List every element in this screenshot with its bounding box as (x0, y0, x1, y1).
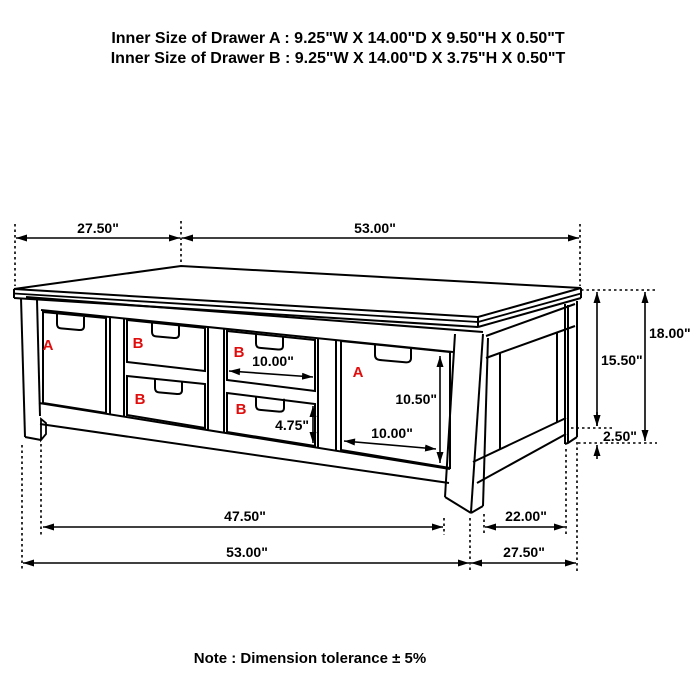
side-bottom-rail-bottom (477, 434, 566, 483)
label-drawer-a-left: A (43, 337, 54, 354)
tabletop-top-face (14, 266, 581, 317)
left-post-inner-edge (37, 300, 40, 416)
label-front-inner: 47.50" (224, 508, 266, 524)
left-post-outer-edge (21, 298, 25, 437)
label-drawer-b-right-top: B (234, 344, 245, 361)
dimension-diagram: Inner Size of Drawer A : 9.25"W X 14.00"… (0, 0, 700, 700)
label-drawer-b-mid-top: B (133, 335, 144, 352)
label-body-height: 15.50" (601, 352, 643, 368)
drawer-a-left (43, 312, 106, 413)
furniture-line-drawing: 27.50" 53.00" 18.00" 15.50" 2.50" 10.00"… (0, 0, 700, 700)
front-right-foot-front-bottom (445, 497, 471, 513)
label-side-inner: 22.00" (505, 508, 547, 524)
front-right-foot-side-bottom (471, 506, 483, 513)
dimension-labels: 27.50" 53.00" 18.00" 15.50" 2.50" 10.00"… (77, 220, 691, 560)
side-bottom-rail-top (473, 418, 566, 462)
dim-line-drawer-b-width (229, 371, 313, 377)
label-drawer-a-front: A (353, 364, 364, 381)
label-drawer-a-height: 10.50" (395, 391, 437, 407)
front-right-leg-back-edge (483, 338, 488, 506)
front-right-leg-corner-edge (471, 334, 483, 512)
label-drawer-b-width: 10.00" (252, 353, 294, 369)
label-drawer-b-mid-bottom: B (135, 391, 146, 408)
left-foot-bottom (25, 437, 41, 440)
label-side-overall: 27.50" (503, 544, 545, 560)
left-foot-side-face (41, 419, 46, 440)
tolerance-note: Note : Dimension tolerance ± 5% (0, 650, 620, 667)
label-leg-clearance: 2.50" (603, 428, 637, 444)
cabinet-side-panel (473, 304, 575, 483)
label-front-overall: 53.00" (226, 544, 268, 560)
label-overall-height: 18.00" (649, 325, 691, 341)
label-drawer-b-height: 4.75" (275, 417, 309, 433)
label-top-width: 53.00" (354, 220, 396, 236)
back-right-foot-bottom (565, 437, 577, 444)
label-top-depth: 27.50" (77, 220, 119, 236)
label-drawer-b-right-bottom: B (236, 401, 247, 418)
dim-line-drawer-a-width (344, 441, 436, 449)
label-drawer-a-width: 10.00" (371, 425, 413, 441)
